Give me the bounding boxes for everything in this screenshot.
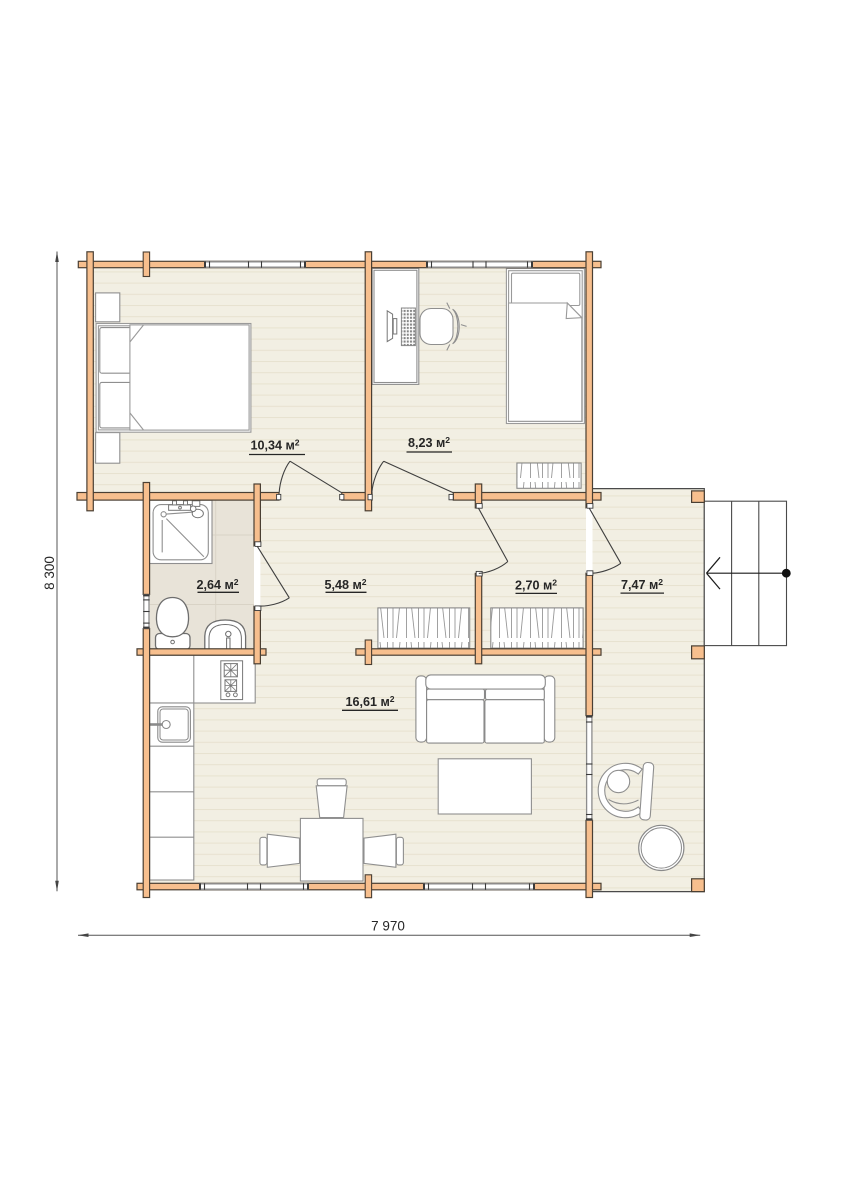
svg-text:2,70 м2: 2,70 м2	[515, 577, 557, 592]
svg-text:10,34 м2: 10,34 м2	[250, 438, 299, 453]
svg-text:5,48 м2: 5,48 м2	[324, 577, 366, 592]
svg-text:8 300: 8 300	[42, 556, 57, 590]
svg-text:8,23 м2: 8,23 м2	[408, 435, 450, 450]
svg-text:16,61 м2: 16,61 м2	[345, 694, 394, 709]
svg-text:7,47 м2: 7,47 м2	[621, 577, 663, 592]
svg-text:7 970: 7 970	[371, 919, 405, 934]
svg-text:2,64 м2: 2,64 м2	[196, 577, 238, 592]
